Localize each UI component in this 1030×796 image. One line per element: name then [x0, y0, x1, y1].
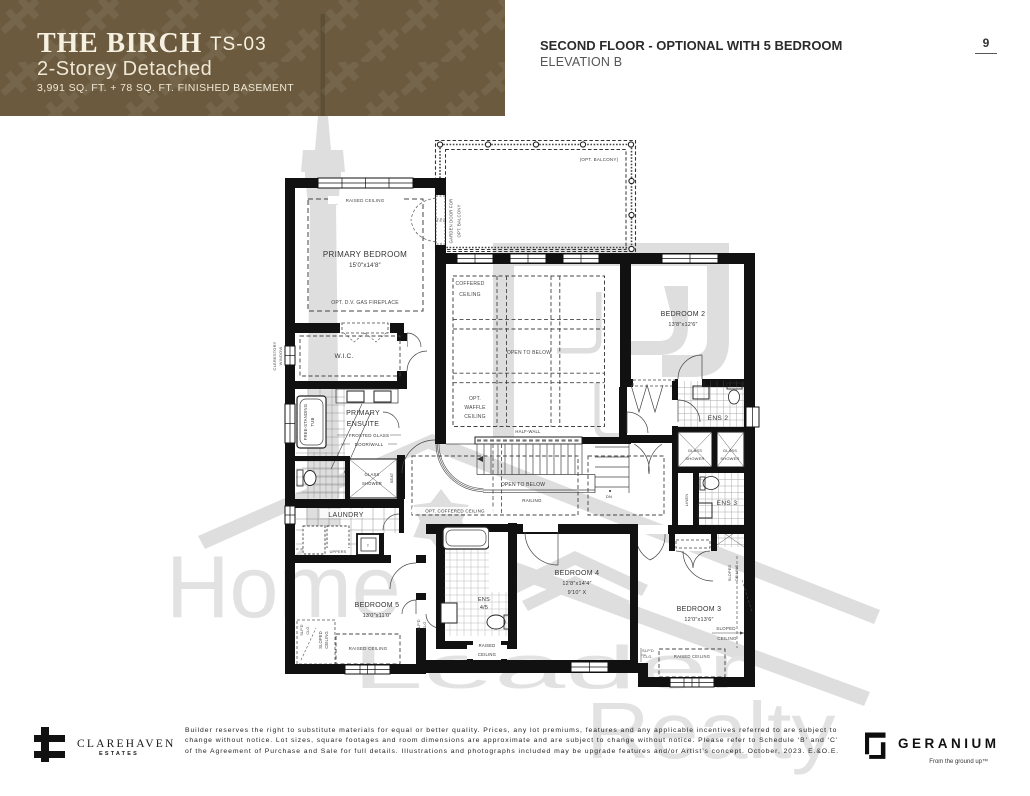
- svg-text:From the ground up™: From the ground up™: [929, 758, 988, 765]
